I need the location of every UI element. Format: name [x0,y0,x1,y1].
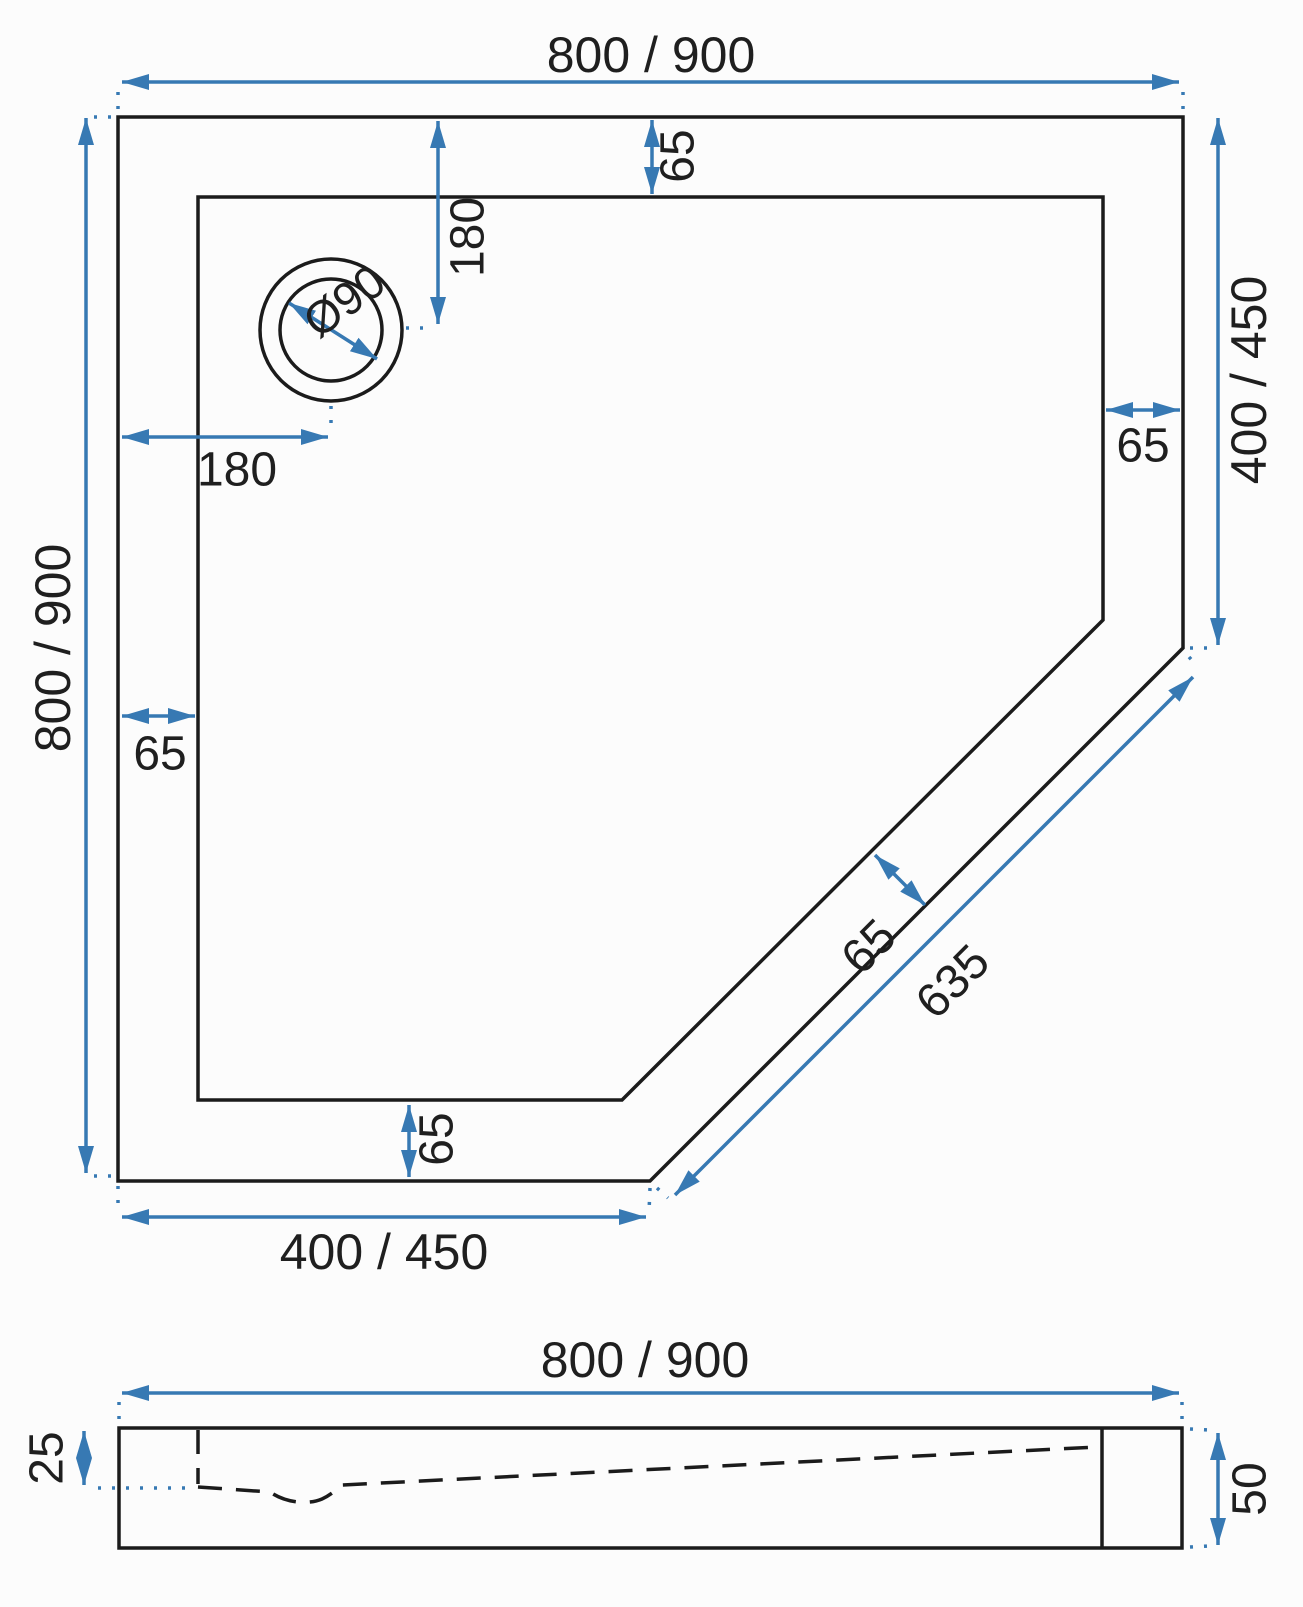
shower-tray-drawing: Ø90 800 / 900 800 / 900 400 / 450 400 / … [0,0,1303,1607]
drain: Ø90 [260,254,402,401]
dim-left-height-label: 800 / 900 [25,544,81,753]
dim-right-height: 400 / 450 [1190,118,1277,648]
dim-drain-from-left-label: 180 [197,444,277,497]
dim-drain-from-left: 180 [122,406,331,497]
dim-bottom-width-label: 400 / 450 [280,1224,489,1280]
side-ext-right-upper [1190,1429,1210,1430]
technical-drawing-page: Ø90 800 / 900 800 / 900 400 / 450 400 / … [0,0,1303,1607]
dim-side-inner-depth-label: 25 [21,1431,74,1484]
dim-top-width-label: 800 / 900 [547,27,756,83]
side-hidden-floor-line [198,1447,1097,1502]
dim-rim-bottom: 65 [409,1105,464,1177]
dim-rim-left: 65 [122,716,195,781]
side-view: 800 / 900 25 50 [21,1332,1277,1548]
dim-rim-right-label: 65 [1116,420,1169,473]
tray-outer-outline [118,117,1183,1181]
dim-top-width: 800 / 900 [118,27,1183,112]
side-body-outline [119,1428,1182,1548]
dim-side-outer-height-label: 50 [1224,1462,1277,1515]
drain-diameter-label: Ø90 [294,254,395,347]
dim-drain-from-top: 180 [406,121,495,328]
dim-side-inner-depth: 25 [21,1431,85,1485]
dim-side-width-label: 800 / 900 [541,1332,750,1388]
dim-side-width: 800 / 900 [122,1332,1179,1393]
dim-left-height: 800 / 900 [25,117,113,1176]
dim-rim-left-label: 65 [133,728,186,781]
top-view: Ø90 800 / 900 800 / 900 400 / 450 400 / … [25,27,1277,1280]
dim-rim-right: 65 [1106,410,1180,473]
dim-diagonal-edge: 635 [657,657,1198,1198]
dim-rim-top: 65 [652,120,705,194]
dim-rim-bottom-label: 65 [411,1112,464,1165]
dim-rim-top-label: 65 [652,129,705,182]
dim-side-outer-height: 50 [1218,1433,1277,1545]
side-ext-right-lower [1190,1546,1210,1547]
dim-bottom-width: 400 / 450 [118,1186,650,1280]
dim-right-height-label: 400 / 450 [1221,276,1277,485]
dim-drain-from-top-label: 180 [442,197,495,277]
